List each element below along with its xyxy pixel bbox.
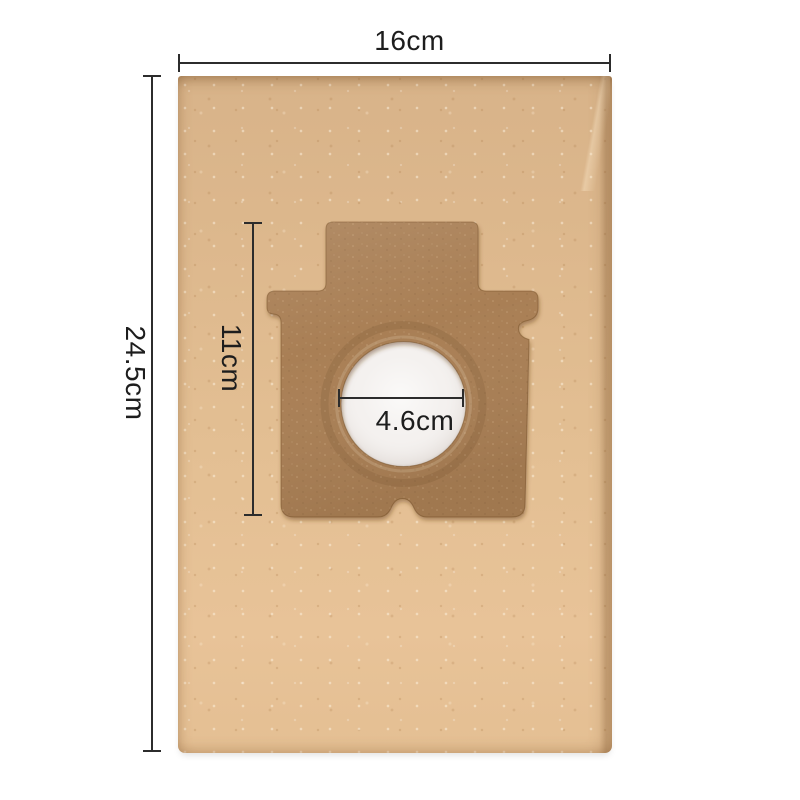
- width-dimension-tick-right: [609, 54, 611, 72]
- hole-diameter-dimension-tick-right: [462, 389, 464, 407]
- hole-diameter-label: 4.6cm: [352, 407, 478, 435]
- plate-height-dimension-line: [252, 222, 254, 516]
- plate-height-dimension-tick-bottom: [244, 514, 262, 516]
- plate-height-dimension-tick-top: [244, 222, 262, 224]
- height-dimension-tick-top: [143, 75, 161, 77]
- width-dimension-line: [178, 62, 611, 64]
- plate-height-label: 11cm: [217, 324, 245, 392]
- bag-height-label: 24.5cm: [121, 326, 149, 421]
- product-dimension-photo: 16cm 24.5cm 11cm 4.6cm: [0, 0, 800, 800]
- hole-diameter-dimension-line: [338, 397, 464, 399]
- height-dimension-tick-bottom: [143, 750, 161, 752]
- height-dimension-line: [151, 75, 153, 752]
- bag-width-label: 16cm: [193, 27, 626, 55]
- width-dimension-tick-left: [178, 54, 180, 72]
- hole-diameter-dimension-tick-left: [338, 389, 340, 407]
